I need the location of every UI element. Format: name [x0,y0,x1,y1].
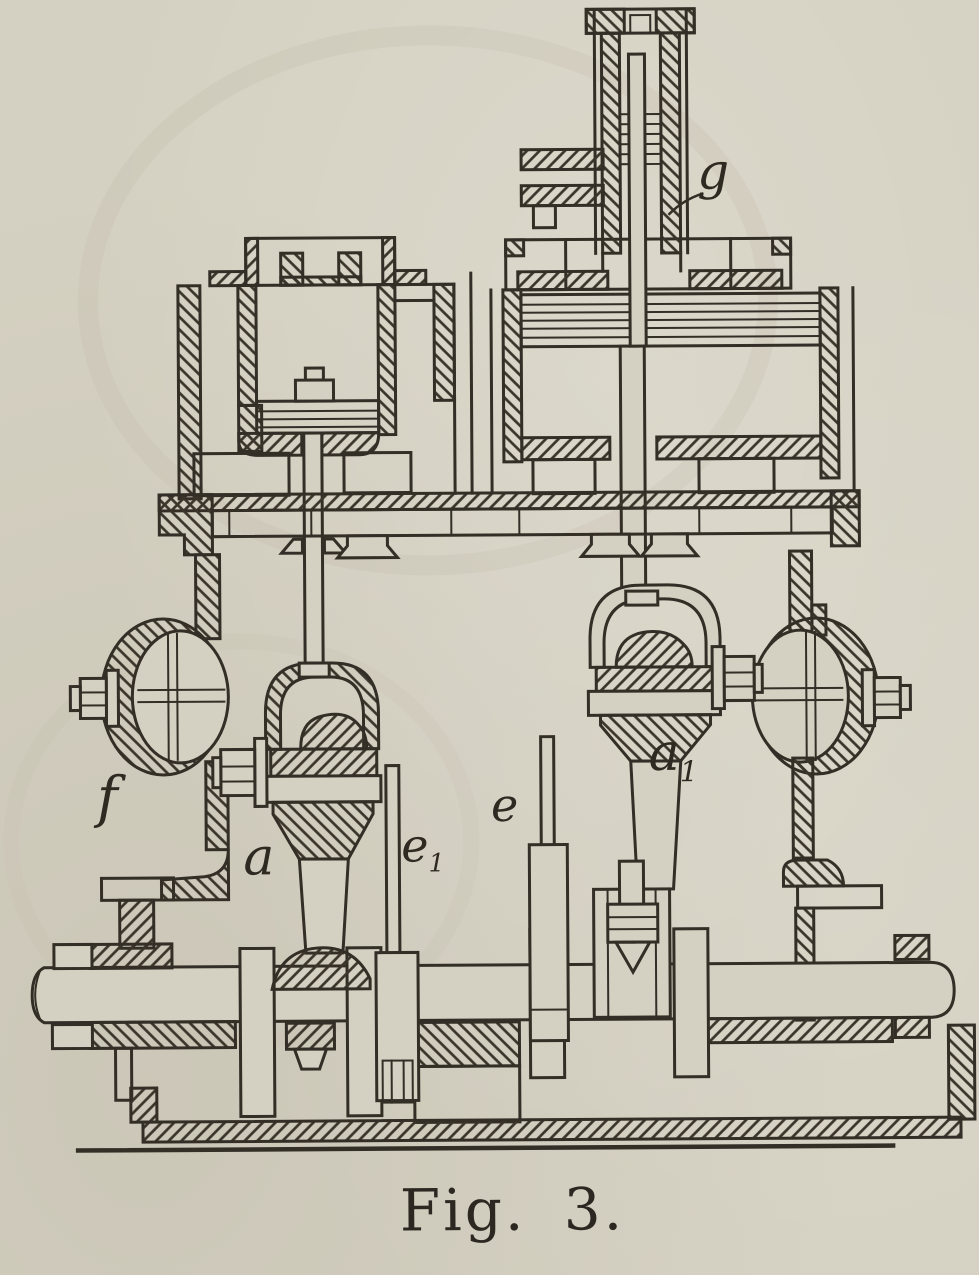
part-label-e1: e1 [401,822,445,876]
left-cylinder [178,237,474,664]
balance-weight-right [751,550,912,1020]
crosshead-a-left [212,663,381,860]
figure-caption: Fig. 3. [362,1175,662,1245]
part-label-a: a [243,831,274,890]
ground-line [78,1146,893,1151]
balance-weight-f-left [69,555,229,949]
scanned-book-page: g f a e1 e a1 Fig. 3. [0,0,979,1275]
valve-rod-e1 [375,765,419,1102]
part-label-g: g [697,147,729,206]
figure-artwork: g f a e1 e a1 Fig. 3. [0,0,979,1275]
engine-cross-section-drawing [0,0,979,1275]
part-label-e: e [491,782,519,836]
part-label-a1: a1 [649,727,699,786]
part-label-f: f [97,770,118,834]
valve-rod-e [529,737,569,1041]
